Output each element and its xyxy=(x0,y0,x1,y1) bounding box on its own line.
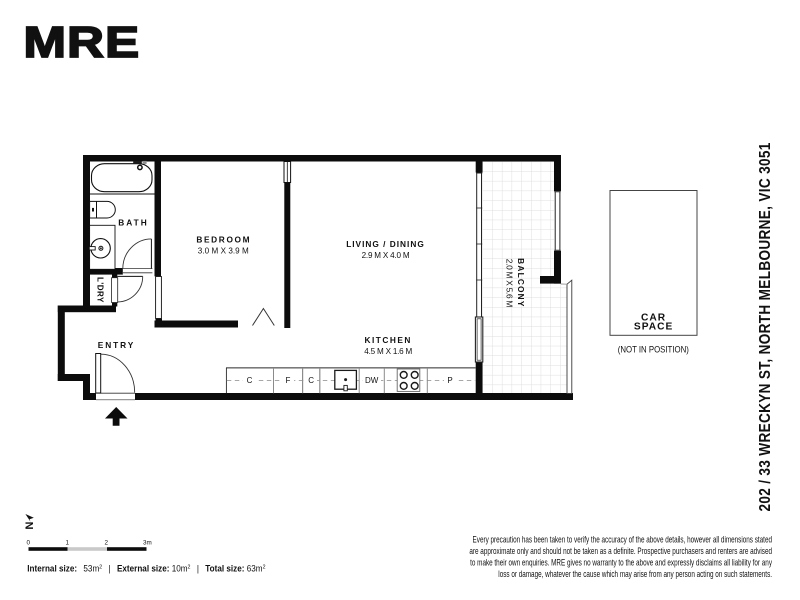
svg-text:3.0 M X 3.9 M: 3.0 M X 3.9 M xyxy=(198,246,249,255)
svg-text:to make their own enquiries. M: to make their own enquiries. MRE gives n… xyxy=(470,557,772,567)
svg-text:F: F xyxy=(286,376,291,385)
svg-text:3m: 3m xyxy=(143,540,152,547)
svg-text:(NOT IN POSITION): (NOT IN POSITION) xyxy=(618,344,689,355)
svg-text:202 / 33 WRECKYN ST, NORTH MEL: 202 / 33 WRECKYN ST, NORTH MELBOURNE, VI… xyxy=(757,142,774,511)
svg-text:SPACE: SPACE xyxy=(634,321,673,332)
svg-text:BEDROOM: BEDROOM xyxy=(196,234,251,244)
svg-text:2.0 M X 5.6 M: 2.0 M X 5.6 M xyxy=(505,259,515,308)
svg-text:1: 1 xyxy=(66,540,70,547)
svg-text:Internal size: 53m2 | Exte: Internal size: 53m2 | External size: 10m… xyxy=(27,563,265,573)
svg-text:BATH: BATH xyxy=(118,217,148,227)
svg-text:P: P xyxy=(447,376,452,385)
svg-text:4.5 M X 1.6 M: 4.5 M X 1.6 M xyxy=(364,347,412,356)
svg-text:DW: DW xyxy=(365,376,379,385)
svg-text:N: N xyxy=(23,522,35,530)
svg-text:LIVING / DINING: LIVING / DINING xyxy=(346,239,425,249)
svg-text:ENTRY: ENTRY xyxy=(98,340,136,350)
svg-text:2.9 M X 4.0 M: 2.9 M X 4.0 M xyxy=(362,251,410,260)
svg-text:C: C xyxy=(308,376,314,385)
svg-text:L'DRY: L'DRY xyxy=(96,277,105,303)
svg-text:2: 2 xyxy=(105,540,109,547)
svg-text:BALCONY: BALCONY xyxy=(516,258,526,307)
svg-text:0: 0 xyxy=(27,540,31,547)
svg-text:KITCHEN: KITCHEN xyxy=(365,335,412,345)
svg-text:Every precaution has been take: Every precaution has been taken to verif… xyxy=(473,534,772,544)
svg-text:loss or damage, whatever the c: loss or damage, whatever the cause which… xyxy=(498,569,772,579)
svg-text:MRE: MRE xyxy=(23,19,140,68)
svg-text:C: C xyxy=(247,376,253,385)
svg-text:are approximate only and shoul: are approximate only and should not be t… xyxy=(469,546,772,556)
